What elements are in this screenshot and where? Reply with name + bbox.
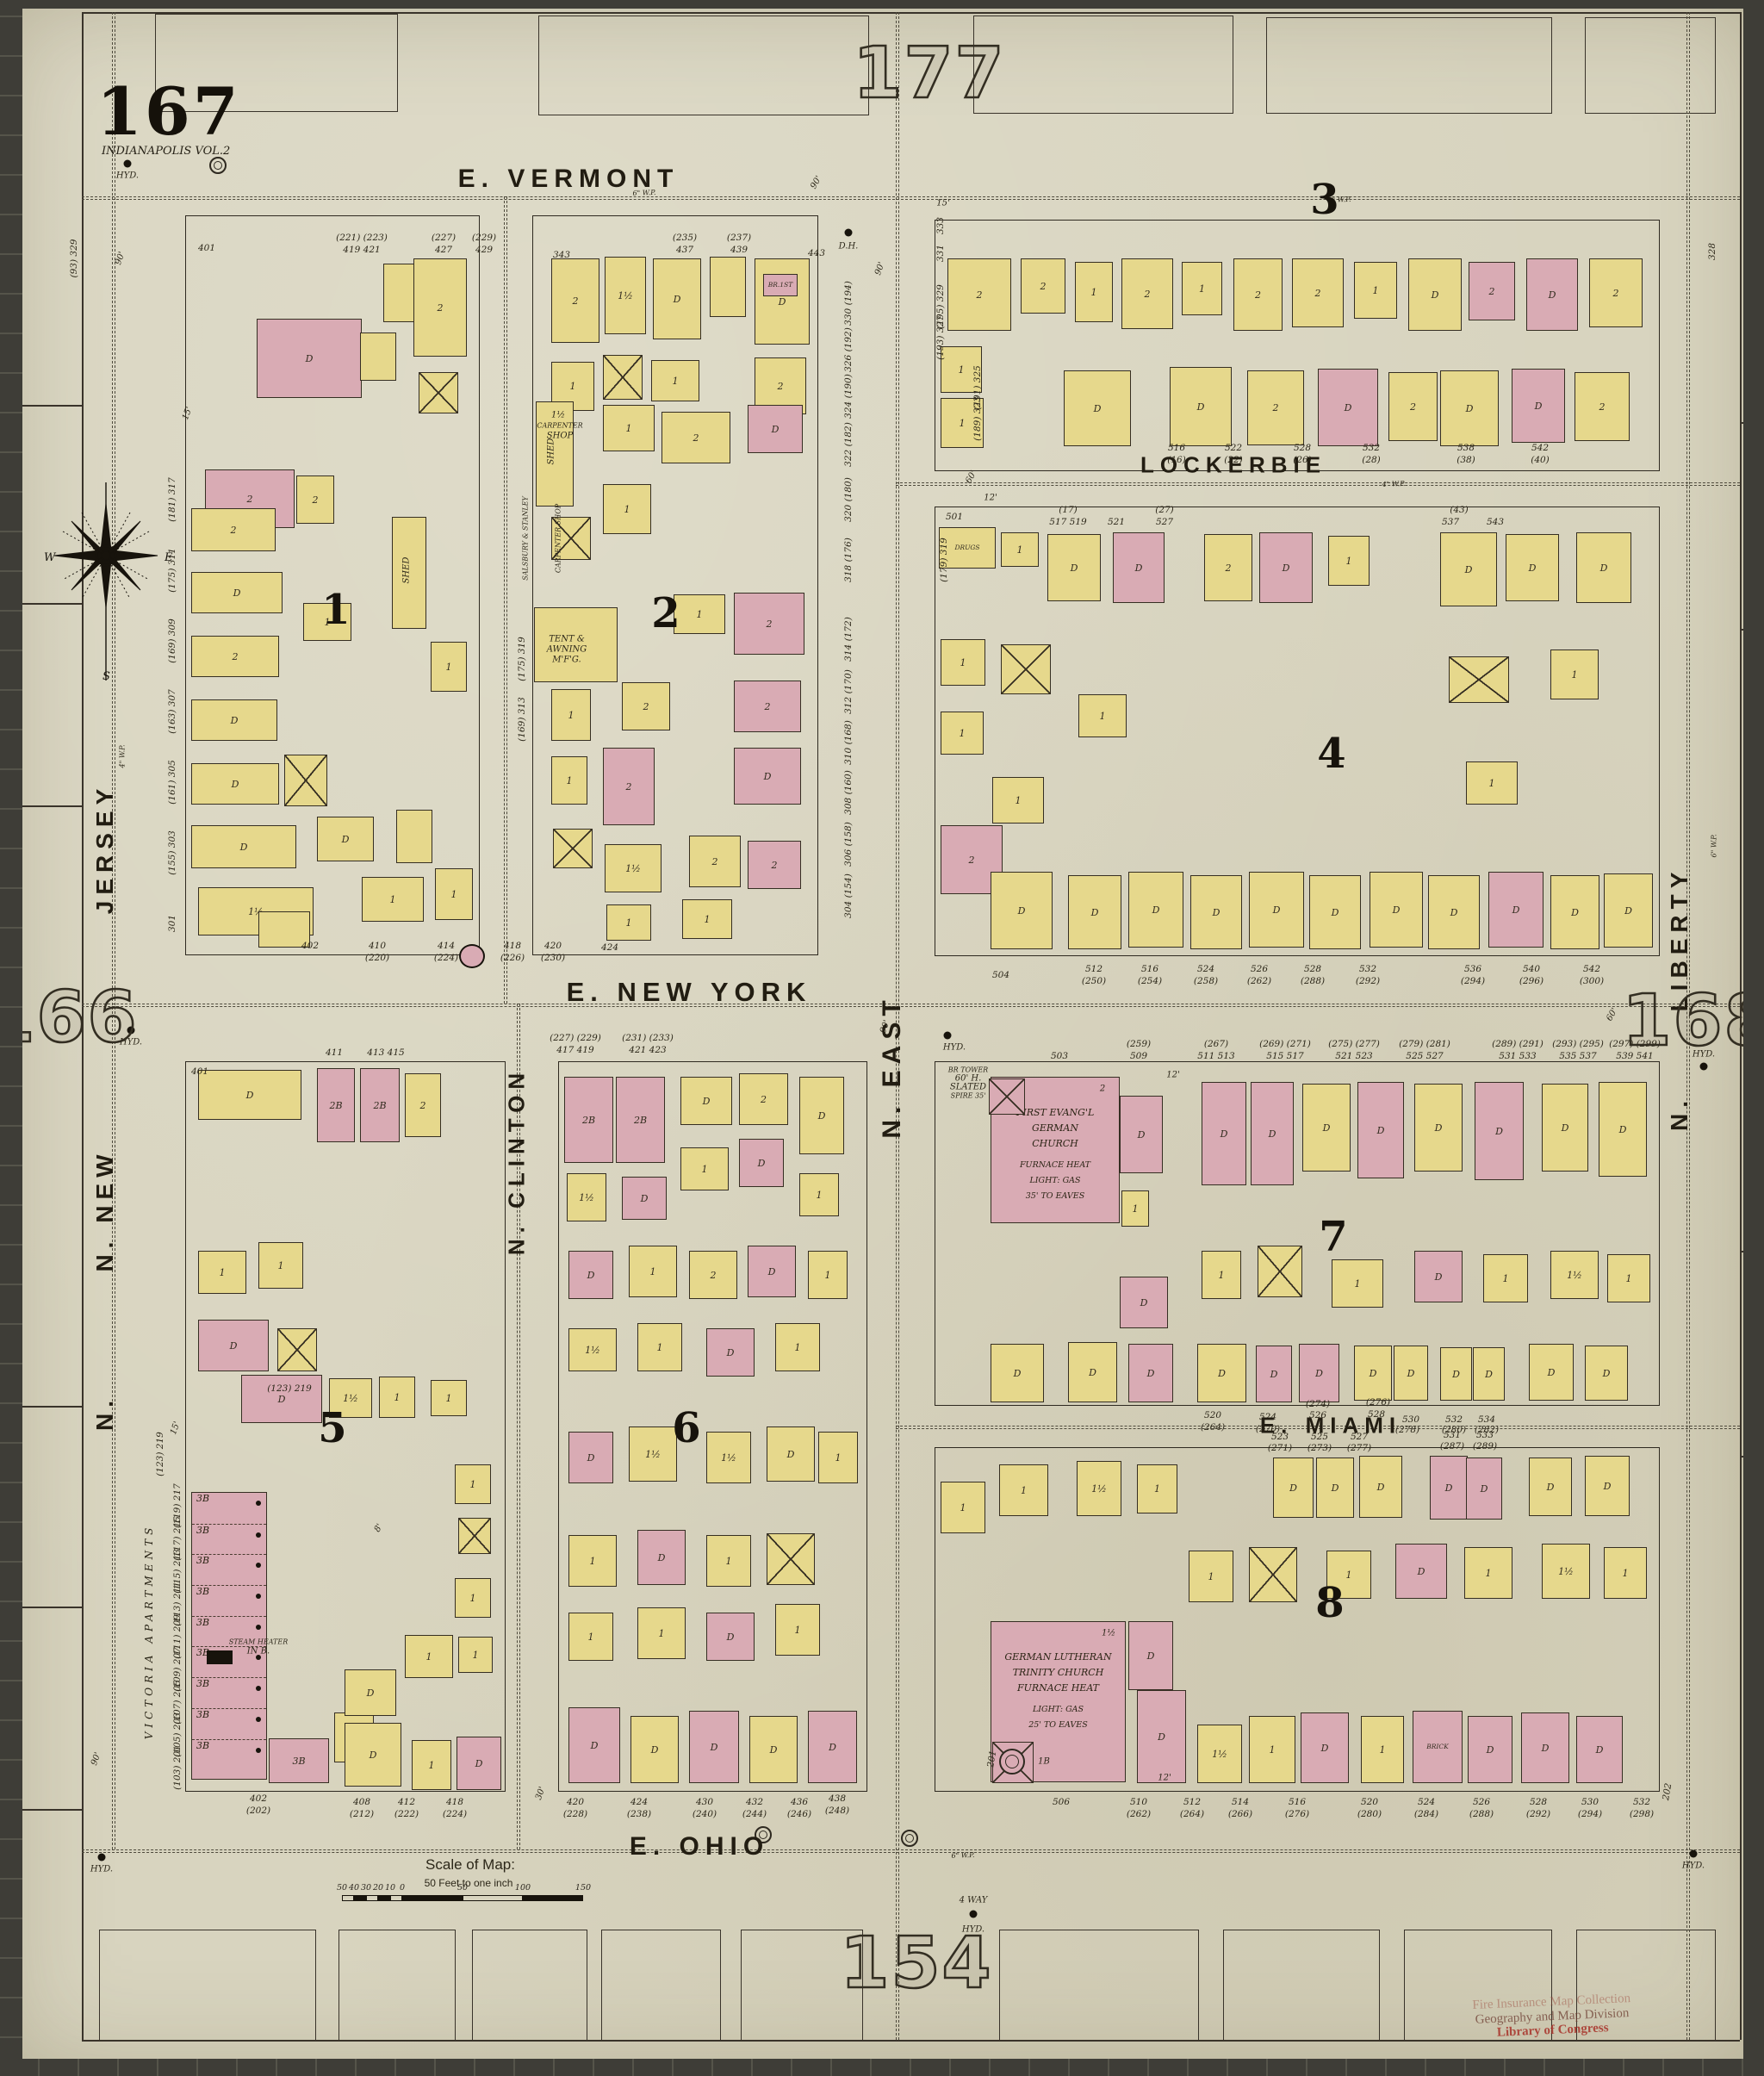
lot-outline (1585, 17, 1716, 114)
address-label: 517 519 (1049, 518, 1086, 527)
building: 2 (622, 682, 670, 730)
building: 1½ (1197, 1725, 1242, 1783)
building: D (1249, 872, 1304, 948)
address-label: (235) (673, 233, 697, 243)
water-pipe-line (504, 196, 507, 1004)
compass-e: E (164, 551, 173, 564)
building: 1 (651, 360, 699, 401)
address-label: 537 (1442, 518, 1459, 527)
map-annotation: IN B. (247, 1646, 270, 1656)
building: D (1302, 1084, 1351, 1172)
building: D (1299, 1344, 1339, 1402)
water-pipe-line (82, 1849, 1740, 1853)
building: D (1414, 1251, 1463, 1302)
hydrant-dot-icon (1690, 1850, 1698, 1858)
building: D (1576, 1716, 1623, 1783)
building: D (1354, 1346, 1392, 1401)
building: D (1430, 1456, 1468, 1520)
building: 1 (1202, 1251, 1241, 1299)
building: 1 (629, 1246, 677, 1297)
address-label: 501 (946, 513, 963, 522)
address-label: (246) (787, 1810, 811, 1819)
hydrant-label: HYD. (90, 1864, 113, 1874)
building: 1 (258, 1242, 303, 1289)
address-label: (269) (271) (1259, 1040, 1311, 1049)
border-line (19, 1809, 82, 1811)
address-label: 538 (1457, 444, 1475, 453)
building: D (630, 1716, 679, 1783)
address-label: 402 (301, 942, 319, 951)
map-annotation: 6" W.P. (951, 1851, 974, 1860)
address-label: (193) 327 (936, 315, 946, 360)
address-label: 437 (676, 246, 693, 255)
building: 2 (1204, 534, 1252, 601)
map-annotation: BR TOWER (948, 1066, 988, 1073)
building: D (1440, 1347, 1472, 1401)
building: 1 (1354, 262, 1397, 319)
address-label: 436 (791, 1798, 808, 1807)
hydrant-dot-icon (98, 1854, 106, 1862)
address-label: 503 (1051, 1052, 1068, 1061)
building: D (734, 748, 801, 805)
building: BR.1ST (763, 274, 798, 296)
building: 1½ (1077, 1461, 1121, 1516)
church-trinity-lutheran-floors: 1½ (1102, 1628, 1115, 1638)
map-annotation: SHED (546, 438, 556, 465)
street-label: E. OHIO (630, 1832, 769, 1862)
building: 2 (748, 841, 801, 889)
building: D (748, 1246, 796, 1297)
address-label: 410 (369, 942, 386, 951)
church-first-evangelical-label: LIGHT: GAS (991, 1176, 1119, 1185)
lot-outline (99, 1930, 316, 2042)
building: D (1190, 875, 1242, 949)
address-label: 530 (1581, 1798, 1599, 1807)
address-label: (230) (541, 954, 565, 963)
water-pipe-line (112, 12, 115, 1849)
street-label: N. (91, 1395, 119, 1431)
building: D (1064, 370, 1131, 446)
building: 1 (455, 1464, 491, 1504)
address-label: (231) (233) (622, 1034, 674, 1043)
building: 1 (362, 877, 424, 922)
border-line (82, 12, 1740, 14)
building (383, 264, 414, 322)
building: 2 (734, 681, 801, 732)
address-label: (228) (563, 1810, 587, 1819)
map-annotation: 15' (936, 198, 949, 208)
street-label: N. (1666, 1095, 1693, 1131)
address-label: 418 (504, 942, 521, 951)
building: D (191, 699, 277, 741)
address-label: (264) (1201, 1423, 1225, 1433)
map-annotation: 1½ (551, 410, 565, 420)
street-label: N. EAST (878, 994, 907, 1138)
building: 2B (317, 1068, 355, 1142)
address-label: (258) (1194, 977, 1218, 986)
address-label: 306 (158) (844, 822, 854, 867)
map-annotation: STEAM HEATER (229, 1638, 289, 1645)
scale-bar-segment (378, 1895, 390, 1901)
address-label: 331 (936, 245, 946, 262)
building: D (1113, 532, 1165, 603)
lot-outline (472, 1930, 587, 2042)
address-label: 443 (808, 249, 825, 258)
map-annotation: 12' (1158, 1773, 1171, 1783)
block-number: 5 (318, 1404, 346, 1452)
border-line (19, 1607, 82, 1608)
building: D (1256, 1346, 1292, 1402)
building: 2 (603, 748, 655, 825)
building: D (1318, 369, 1378, 446)
address-label: 516 (1141, 965, 1158, 974)
scale-bar-segment (366, 1895, 378, 1901)
building: 1 (431, 642, 467, 692)
church-first-evangelical-tower (989, 1078, 1025, 1115)
street-label: LOCKERBIE (1140, 452, 1326, 479)
building: 1 (1078, 694, 1127, 737)
address-label: 310 (168) (844, 720, 854, 765)
address-label: (293) (295) (1552, 1040, 1604, 1049)
church-trinity-lutheran-label: LIGHT: GAS (991, 1705, 1125, 1714)
building: D (1408, 258, 1462, 331)
map-annotation: SHOP (547, 431, 574, 441)
water-pipe-line (896, 482, 1740, 486)
map-annotation: SPIRE 35' (951, 1091, 986, 1099)
scale-tick-label: 0 (400, 1883, 405, 1893)
building: 1 (568, 1535, 617, 1587)
address-label: (287) (1440, 1442, 1464, 1451)
building: 1½ (567, 1173, 606, 1221)
building (553, 829, 593, 868)
building: 2 (405, 1073, 441, 1137)
address-label: 419 421 (343, 246, 380, 255)
address-label: 510 (1130, 1798, 1147, 1807)
address-label: 424 (601, 943, 618, 953)
building: 1 (818, 1432, 858, 1483)
address-label: (296) (1519, 977, 1543, 986)
street-label: N. CLINTON (504, 1067, 531, 1255)
address-label: (38) (1457, 456, 1475, 465)
building: 1 (568, 1613, 613, 1661)
building: 1 (1328, 536, 1370, 586)
building: D (1137, 1690, 1186, 1783)
address-label: (103) 201 (173, 1745, 183, 1790)
building: 2 (1575, 372, 1630, 441)
building: 1 (992, 777, 1044, 824)
building: D (808, 1711, 857, 1783)
map-annotation: 12' (1166, 1070, 1179, 1080)
address-label: (202) (246, 1806, 270, 1816)
building: 1½ (629, 1426, 677, 1482)
building: D (653, 258, 701, 339)
map-annotation: SHED (401, 557, 412, 584)
building (284, 755, 327, 806)
building: D (1251, 1082, 1294, 1185)
address-label: 506 (1053, 1798, 1070, 1807)
lot-outline (973, 16, 1233, 114)
building: D (1585, 1346, 1628, 1401)
building: 1 (551, 689, 591, 741)
address-label: 530 (1402, 1415, 1419, 1425)
building: D (1468, 1716, 1512, 1783)
building: D (1259, 532, 1313, 603)
apartment-unit: 3B (192, 1554, 266, 1585)
scale-tick-label: 150 (575, 1883, 591, 1893)
building: 1 (1121, 1190, 1149, 1227)
building: D (991, 872, 1053, 949)
lot-outline (339, 1930, 456, 2042)
building: 1 (775, 1323, 820, 1371)
building: 1½ (1542, 1544, 1590, 1599)
building (767, 1533, 815, 1585)
building: 1 (1137, 1464, 1177, 1513)
building: 2 (734, 593, 804, 655)
lot-outline (1223, 1930, 1380, 2042)
building: D (1170, 367, 1232, 446)
building: D (1068, 875, 1121, 949)
map-annotation: CARPENTER SHOP (554, 504, 562, 573)
address-label: 504 (992, 971, 1009, 980)
building: D (1440, 532, 1497, 606)
building: D (1357, 1082, 1404, 1178)
building: D (191, 825, 296, 868)
address-label: (250) (1082, 977, 1106, 986)
building: D (1473, 1347, 1505, 1401)
building: 1 (1604, 1547, 1647, 1599)
compass-w: W (44, 551, 57, 564)
building: D (1359, 1456, 1402, 1518)
building: 1 (1189, 1551, 1233, 1602)
address-label: 326 (192) (844, 327, 854, 372)
block-number: 4 (1317, 730, 1345, 778)
address-label: (240) (693, 1810, 717, 1819)
lot-outline (999, 1930, 1199, 2042)
building: 1 (1464, 1547, 1512, 1599)
border-line (19, 405, 82, 407)
address-label: (300) (1580, 977, 1604, 986)
address-label: (279) (281) (1399, 1040, 1450, 1049)
building: 1 (941, 1482, 985, 1533)
address-label: 427 (435, 246, 452, 255)
building: D (1414, 1084, 1463, 1172)
building: D (706, 1328, 755, 1377)
building: D (1394, 1346, 1428, 1401)
hydrant-dot-icon (124, 160, 132, 168)
address-label: 402 (250, 1794, 267, 1804)
address-label: (294) (1578, 1810, 1602, 1819)
address-label: 527 (1156, 518, 1173, 527)
address-label: (227) (229) (550, 1034, 601, 1043)
building: D (1428, 875, 1480, 949)
building: D (1529, 1344, 1574, 1401)
building: 1 (799, 1173, 839, 1216)
address-label: (275) (277) (1328, 1040, 1380, 1049)
address-label: 318 (176) (844, 538, 854, 582)
building: 2B (616, 1077, 665, 1163)
scale-bar-segment (390, 1895, 402, 1901)
street-label: N. NEW (91, 1148, 119, 1271)
address-label: 528 (1530, 1798, 1547, 1807)
map-annotation: 4" W.P. (1382, 480, 1405, 488)
lot-outline (601, 1930, 721, 2042)
manhole-circle-icon (209, 157, 227, 174)
building: D (739, 1139, 784, 1187)
address-label: 526 (1473, 1798, 1490, 1807)
sheet-subtitle: INDIANAPOLIS VOL.2 (102, 145, 230, 158)
building: 2 (1233, 258, 1283, 331)
building: 2 (1388, 372, 1438, 441)
building: 1 (379, 1377, 415, 1418)
building: D (1604, 873, 1653, 948)
address-label: (212) (350, 1810, 374, 1819)
map-annotation: 4" W.P. (118, 745, 126, 768)
address-label: 420 (567, 1798, 584, 1807)
hydrant-label: HYD. (116, 171, 139, 181)
address-label: 526 (1251, 965, 1268, 974)
map-annotation: SALSBURY & STANLEY (521, 496, 529, 581)
building: D (622, 1177, 667, 1220)
address-label: (277) (1347, 1444, 1371, 1453)
map-annotation: 4 WAY (960, 1895, 988, 1905)
address-label: 516 (1289, 1798, 1306, 1807)
address-label: 511 513 (1197, 1052, 1234, 1061)
map-annotation: M'F'G. (552, 655, 581, 665)
address-label: 330 (194) (844, 281, 854, 326)
building: D (191, 763, 279, 805)
building: D (1273, 1458, 1314, 1518)
scan-edge-right (1743, 0, 1764, 2076)
building: D (198, 1320, 269, 1371)
church-trinity-lutheran-label: 25' TO EAVES (991, 1720, 1125, 1730)
map-annotation: AWNING (547, 644, 587, 655)
building: 2 (1469, 262, 1515, 320)
address-label: 542 (1583, 965, 1600, 974)
building: D (1466, 1458, 1502, 1520)
address-label: 320 (180) (844, 477, 854, 522)
building: 2 (191, 508, 276, 551)
building: 1 (1075, 262, 1113, 322)
address-label: 401 (198, 244, 215, 253)
building: 1 (637, 1607, 686, 1659)
scale-tick-label: 100 (515, 1883, 531, 1893)
building: D (1047, 534, 1101, 601)
apartment-unit: 3B (192, 1585, 266, 1616)
victoria-apartments: 3B3B3B3B3B3B3B3B3B (191, 1492, 267, 1780)
building: D (1576, 532, 1631, 603)
building: 1 (808, 1251, 848, 1299)
building: 1 (1550, 650, 1599, 699)
building: D (1440, 370, 1499, 446)
map-annotation: TENT & (549, 634, 584, 644)
address-label: (189) 323 (973, 396, 983, 441)
compass-rose-icon: W E S (30, 478, 185, 693)
scale-tick-label: 20 (373, 1883, 383, 1893)
address-label: 417 419 (556, 1046, 593, 1055)
scale-tick-label: 50 (457, 1883, 468, 1893)
address-label: (280) (1357, 1810, 1382, 1819)
address-label: 414 (438, 942, 455, 951)
address-label: (273) (1307, 1444, 1332, 1453)
address-label: (274) (1306, 1400, 1330, 1409)
building (396, 810, 432, 863)
building (1258, 1246, 1302, 1297)
building: D (1506, 534, 1559, 601)
building: 2 (551, 258, 599, 343)
lot-outline (538, 16, 869, 115)
address-label: (267) (1204, 1040, 1228, 1049)
scale-title: Scale of Map: (425, 1856, 515, 1874)
address-label: (294) (1461, 977, 1485, 986)
scan-edge-bottom (0, 2059, 1764, 2076)
scale-tick-label: 50 (337, 1883, 347, 1893)
building: D (1301, 1712, 1349, 1783)
address-label: (276) (1366, 1398, 1390, 1408)
building: D (1128, 1621, 1173, 1690)
address-label: 312 (170) (844, 669, 854, 714)
building: D (568, 1707, 620, 1783)
building: D (1197, 1344, 1246, 1402)
water-pipe-line (82, 1004, 1740, 1007)
address-label: 532 (1445, 1415, 1463, 1425)
address-label: (264) (1180, 1810, 1204, 1819)
address-label: (289) (1473, 1442, 1497, 1451)
address-label: (229) (472, 233, 496, 243)
address-label: 533 (1476, 1431, 1494, 1440)
building: D (1068, 1342, 1117, 1402)
church-trinity-lutheran-label: TRINITY CHURCH (991, 1667, 1125, 1678)
building (1249, 1547, 1297, 1602)
sheet-number: 167 (96, 79, 241, 145)
scale-bar-segment (354, 1895, 366, 1901)
building: 2 (413, 258, 467, 357)
address-label: 411 (326, 1048, 343, 1058)
address-label: (254) (1138, 977, 1162, 986)
building (419, 372, 458, 413)
building: 1 (941, 712, 984, 755)
building: 1 (455, 1578, 491, 1618)
church-first-evangelical-floors: 2 (1100, 1084, 1105, 1094)
street-label: E. NEW YORK (567, 977, 812, 1008)
building (603, 355, 643, 400)
address-label: 322 (182) (844, 422, 854, 467)
building (458, 1518, 491, 1554)
address-label: 528 (1304, 965, 1321, 974)
address-label: 532 (1359, 965, 1376, 974)
address-label: 543 (1487, 518, 1504, 527)
address-label: 532 (1363, 444, 1380, 453)
scale-tick-label: 30 (361, 1883, 371, 1893)
address-label: (224) (443, 1810, 467, 1819)
building: 1 (1361, 1716, 1404, 1783)
building: 1 (1483, 1254, 1528, 1302)
address-label: (288) (1469, 1810, 1494, 1819)
utility-dot-icon (970, 1911, 978, 1918)
building: 1 (941, 639, 985, 686)
scale-tick-label: 10 (385, 1883, 395, 1893)
building: D (767, 1426, 815, 1482)
block-number: 7 (1319, 1213, 1347, 1261)
building: 1 (1249, 1716, 1295, 1783)
building: 2 (947, 258, 1011, 331)
building: 1 (674, 594, 725, 634)
address-label: 520 (1204, 1411, 1221, 1420)
building: D (241, 1375, 322, 1423)
building: 2B (564, 1077, 613, 1163)
address-label: (179) 319 (940, 538, 949, 582)
address-label: (227) (432, 233, 456, 243)
address-label: 524 (1418, 1798, 1435, 1807)
